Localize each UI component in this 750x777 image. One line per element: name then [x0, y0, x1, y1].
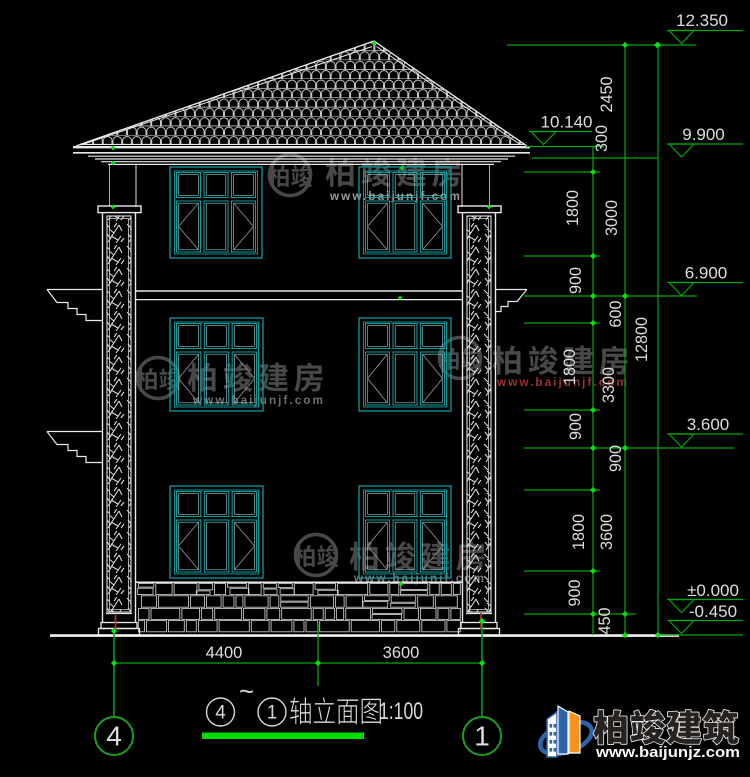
- svg-text:900: 900: [566, 579, 584, 606]
- svg-text:4400: 4400: [206, 644, 243, 662]
- svg-text:~: ~: [239, 676, 254, 706]
- svg-text:9.900: 9.900: [682, 125, 725, 144]
- svg-text:1: 1: [267, 703, 278, 724]
- svg-text:1: 1: [474, 721, 490, 752]
- svg-text:3600: 3600: [598, 514, 616, 550]
- svg-text:450: 450: [596, 607, 614, 634]
- svg-text:600: 600: [607, 300, 625, 327]
- svg-text:1800: 1800: [570, 514, 588, 550]
- svg-text:1:100: 1:100: [379, 698, 423, 725]
- svg-text:±0.000: ±0.000: [687, 581, 739, 600]
- svg-text:300: 300: [593, 125, 611, 152]
- svg-text:900: 900: [567, 413, 585, 440]
- svg-text:12800: 12800: [633, 317, 651, 362]
- svg-text:900: 900: [607, 445, 625, 472]
- svg-text:10.140: 10.140: [541, 113, 593, 132]
- svg-text:1800: 1800: [561, 349, 579, 385]
- svg-text:4: 4: [215, 703, 226, 724]
- svg-text:900: 900: [567, 267, 585, 294]
- svg-text:4: 4: [106, 721, 122, 752]
- svg-text:1800: 1800: [564, 190, 582, 226]
- svg-text:www.baijunjz.com: www.baijunjz.com: [595, 745, 740, 761]
- svg-text:-0.450: -0.450: [689, 602, 737, 621]
- svg-text:12.350: 12.350: [676, 11, 728, 30]
- svg-text:6.900: 6.900: [685, 264, 728, 283]
- svg-text:3000: 3000: [603, 200, 621, 236]
- svg-text:3.600: 3.600: [687, 415, 730, 434]
- svg-text:2450: 2450: [598, 76, 616, 112]
- svg-text:3600: 3600: [383, 644, 420, 662]
- svg-text:3300: 3300: [600, 367, 618, 403]
